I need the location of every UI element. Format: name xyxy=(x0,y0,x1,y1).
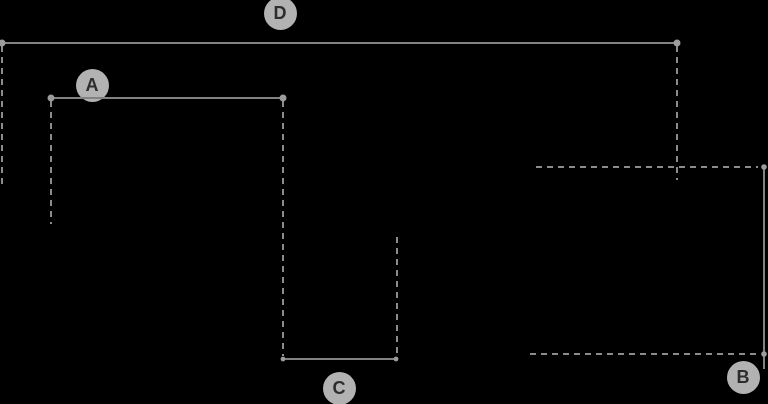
dimension-badge-label: A xyxy=(86,76,99,94)
endpoint-dot-D-1 xyxy=(674,40,681,47)
dimension-diagram: DACB xyxy=(0,0,768,404)
dimension-badge-B: B xyxy=(727,361,760,394)
dimension-badge-C: C xyxy=(323,372,356,404)
badge-layer: DACB xyxy=(0,0,768,404)
endpoint-dot-A-0 xyxy=(48,95,55,102)
endpoint-dot-B-1 xyxy=(761,351,767,357)
dimension-badge-label: C xyxy=(333,379,346,397)
endpoint-dot-A-1 xyxy=(280,95,287,102)
dimension-badge-label: B xyxy=(737,368,750,386)
endpoint-dot-D-0 xyxy=(0,40,6,47)
dimension-badge-D: D xyxy=(264,0,297,30)
endpoint-dot-B-0 xyxy=(761,164,767,170)
endpoint-dot-C-0 xyxy=(281,357,286,362)
diagram-canvas xyxy=(0,0,768,404)
dimension-badge-A: A xyxy=(76,69,109,102)
endpoint-dot-C-1 xyxy=(394,357,399,362)
dimension-badge-label: D xyxy=(274,4,287,22)
